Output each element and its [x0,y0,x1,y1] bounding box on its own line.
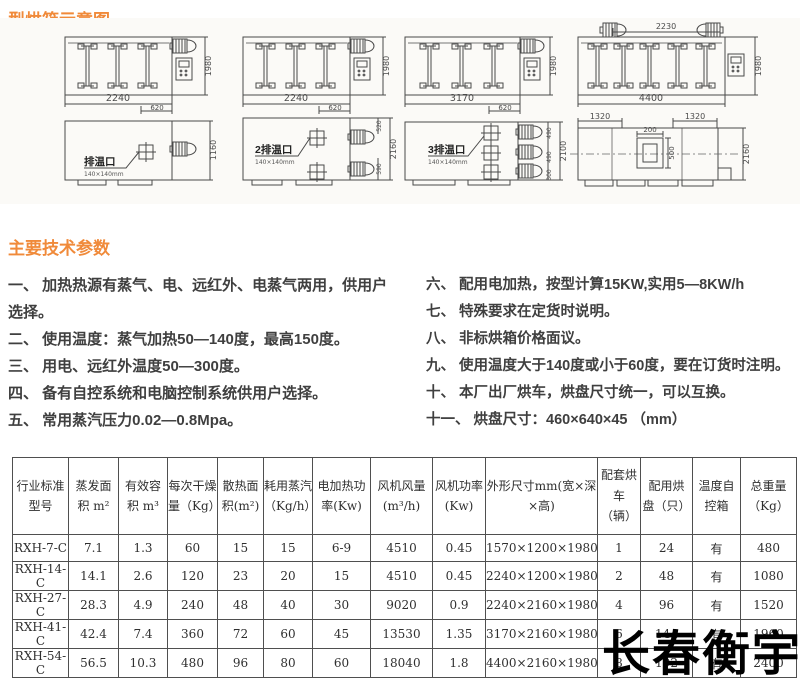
spec-item: 二、 使用温度：蒸气加热50—140度，最高150度。 [8,326,420,353]
value-cell: 14.1 [69,562,119,591]
params-column-right: 六、 配用电加热，按型计算15KW,实用5—8KW/h七、 特殊要求在定货时说明… [426,272,798,434]
dim-port-height: 500 [668,146,676,159]
dim-offset: 620 [150,104,163,112]
dim-height: 2100 [559,141,568,161]
dim-seg2: 490 [546,151,553,163]
vent-size-note: 140×140mm [84,171,124,178]
value-cell: 30 [313,591,371,620]
value-cell: 有 [693,535,741,562]
value-cell: 4510 [371,562,433,591]
value-cell: 23 [218,562,264,591]
column-header: 蒸发面 积 m² [69,458,119,535]
column-header: 有效容 积 m³ [119,458,168,535]
value-cell: 96 [218,649,264,678]
dim-width: 3170 [450,93,474,104]
value-cell: 240 [168,591,218,620]
vent-size-note: 140×140mm [428,159,468,166]
value-cell: 20 [264,562,313,591]
spec-item: 一、 加热热源有蒸气、电、远红外、电蒸气两用，供用户 选择。 [8,272,420,326]
value-cell: 18040 [371,649,433,678]
model-cell: RXH-14-C [13,562,69,591]
value-cell: 40 [264,591,313,620]
dim-left-span: 1320 [590,112,610,121]
column-header: 配用烘 盘（只） [641,458,693,535]
value-cell: 2 [598,562,641,591]
spec-item: 八、 非标烘箱价格面议。 [426,326,798,353]
value-cell: 0.9 [433,591,486,620]
watermark: 长春衡宇 [602,614,800,678]
dim-seg-bottom: 590 [376,163,383,175]
spec-item: 十一、 烘盘尺寸：460×640×45 （mm） [426,407,798,434]
spec-item: 四、 备有自控系统和电脑控制系统供用户选择。 [8,380,420,407]
dim-seg3: 300 [546,169,553,181]
value-cell: 1.8 [433,649,486,678]
value-cell: 7.4 [119,620,168,649]
spec-item: 三、 用电、远红外温度50—300度。 [8,353,420,380]
value-cell: 2240×2160×1980 [486,591,598,620]
value-cell: 60 [168,535,218,562]
spec-item: 七、 特殊要求在定货时说明。 [426,299,798,326]
dim-port-width: 200 [643,126,656,134]
oven-diagrams: 2240 620 1980 2240 620 1980 3170 620 198… [0,10,800,210]
technical-parameters: 一、 加热热源有蒸气、电、远红外、电蒸气两用，供用户 选择。二、 使用温度：蒸气… [8,272,798,434]
value-cell: 60 [313,649,371,678]
value-cell: 60 [264,620,313,649]
dim-height: 1980 [549,56,558,76]
value-cell: 0.45 [433,562,486,591]
value-cell: 0.45 [433,535,486,562]
value-cell: 24 [641,535,693,562]
value-cell: 有 [693,562,741,591]
value-cell: 7.1 [69,535,119,562]
value-cell: 42.4 [69,620,119,649]
table-row: RXH-7-C7.11.36015156-945100.451570×1200×… [13,535,797,562]
value-cell: 15 [264,535,313,562]
table-header-row: 行业标准 型号蒸发面 积 m²有效容 积 m³每次干燥 量（Kg）散热面 积(m… [13,458,797,535]
dim-offset: 620 [498,104,511,112]
dim-height: 2160 [389,139,398,159]
dim-offset: 620 [328,104,341,112]
value-cell: 45 [313,620,371,649]
model-cell: RXH-7-C [13,535,69,562]
column-header: 电加热功 率(Kw) [313,458,371,535]
value-cell: 120 [168,562,218,591]
column-header: 温度自 控箱 [693,458,741,535]
value-cell: 48 [218,591,264,620]
column-header: 风机功率 (Kw) [433,458,486,535]
value-cell: 6-9 [313,535,371,562]
value-cell: 2.6 [119,562,168,591]
value-cell: 1570×1200×1980 [486,535,598,562]
dim-height: 1980 [754,56,763,76]
spec-item: 十、 本厂出厂烘车，烘盘尺寸统一，可以互换。 [426,380,798,407]
value-cell: 1 [598,535,641,562]
value-cell: 4.9 [119,591,168,620]
value-cell: 360 [168,620,218,649]
value-cell: 15 [218,535,264,562]
model-cell: RXH-41-C [13,620,69,649]
value-cell: 80 [264,649,313,678]
value-cell: 1.35 [433,620,486,649]
column-header: 外形尺寸mm(宽×深 ×高) [486,458,598,535]
value-cell: 13530 [371,620,433,649]
value-cell: 9020 [371,591,433,620]
column-header: 耗用蒸汽 （Kg/h） [264,458,313,535]
column-header: 总重量 （Kg） [741,458,797,535]
value-cell: 1.3 [119,535,168,562]
value-cell: 10.3 [119,649,168,678]
dim-width: 2240 [106,93,130,104]
dim-seg1: 490 [546,127,553,139]
dim-height: 1980 [204,56,213,76]
dim-height: 2160 [742,144,751,164]
spec-item: 九、 使用温度大于140度或小于60度，要在订货时注明。 [426,353,798,380]
column-header: 散热面 积(m²) [218,458,264,535]
dim-top-span: 2230 [656,22,676,31]
dim-width: 2240 [284,93,308,104]
value-cell: 4510 [371,535,433,562]
vent-label: 2排温口 [255,143,292,156]
value-cell: 480 [168,649,218,678]
spec-item: 五、 常用蒸汽压力0.02—0.8Mpa。 [8,407,420,434]
dim-width: 4400 [639,93,663,104]
table-row: RXH-14-C14.12.612023201545100.452240×120… [13,562,797,591]
page: 型烘箱示意图 [0,0,800,678]
params-section-title: 主要技术参数 [8,234,110,259]
value-cell: 56.5 [69,649,119,678]
value-cell: 15 [313,562,371,591]
value-cell: 48 [641,562,693,591]
column-header: 风机风量 (m³/h) [371,458,433,535]
model-cell: RXH-27-C [13,591,69,620]
value-cell: 72 [218,620,264,649]
spec-item: 六、 配用电加热，按型计算15KW,实用5—8KW/h [426,272,798,299]
dim-right-span: 1320 [685,112,705,121]
value-cell: 1080 [741,562,797,591]
dim-height: 1980 [382,56,391,76]
dim-seg-top: 520 [376,120,383,132]
value-cell: 28.3 [69,591,119,620]
vent-label: 3排温口 [428,143,465,156]
dim-height: 1160 [209,140,218,160]
value-cell: 2240×1200×1980 [486,562,598,591]
value-cell: 4400×2160×1980 [486,649,598,678]
model-cell: RXH-54-C [13,649,69,678]
vent-label: 排温口 [84,155,116,168]
column-header: 行业标准 型号 [13,458,69,535]
column-header: 每次干燥 量（Kg） [168,458,218,535]
params-column-left: 一、 加热热源有蒸气、电、远红外、电蒸气两用，供用户 选择。二、 使用温度：蒸气… [8,272,420,434]
vent-size-note: 140×140mm [255,159,295,166]
column-header: 配套烘 车（辆） [598,458,641,535]
value-cell: 480 [741,535,797,562]
value-cell: 3170×2160×1980 [486,620,598,649]
